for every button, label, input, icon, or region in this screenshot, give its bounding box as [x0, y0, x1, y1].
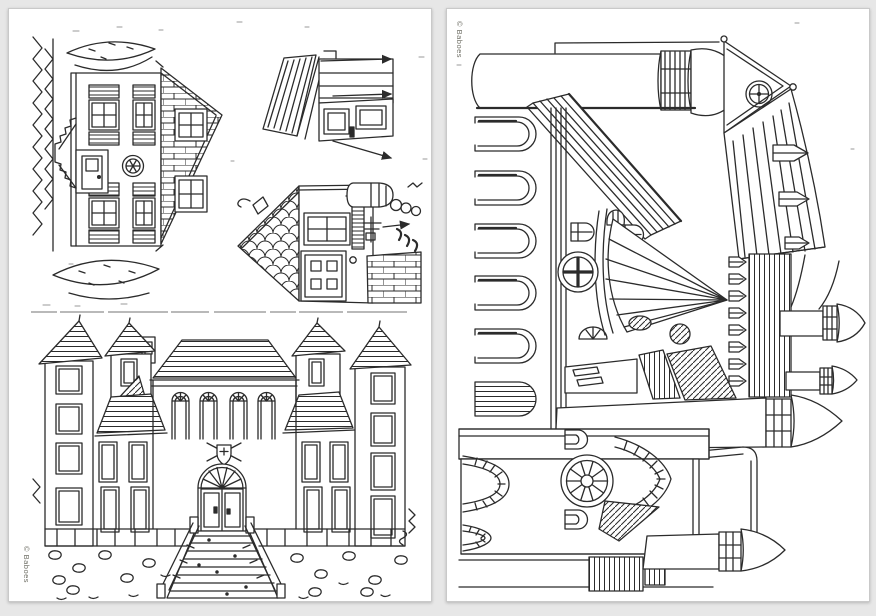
copyright-label: © Baboes — [22, 546, 31, 583]
entrance-door — [55, 118, 108, 193]
arched-windows — [172, 393, 275, 440]
copyright-label: © Baboes — [455, 21, 464, 58]
cathedral-group — [459, 36, 865, 591]
scale-roof-house-drawing — [238, 183, 422, 303]
aisle-roofs — [565, 316, 736, 400]
coloring-page-right: © Baboes — [446, 8, 870, 602]
cathedral-drawing — [447, 9, 869, 601]
houses-and-castle-drawing — [9, 9, 431, 601]
emblem — [207, 443, 241, 465]
colonnade-arches — [475, 117, 536, 469]
nave-roof-band — [527, 94, 681, 239]
minaret-top — [780, 304, 865, 342]
entrance-portal — [198, 464, 246, 531]
rose-window — [561, 455, 613, 507]
section-divider-line — [31, 304, 407, 312]
coloring-page-left: © Baboes — [8, 8, 432, 602]
sideways-house-drawing — [33, 37, 222, 299]
tilted-plank-house-drawing — [263, 51, 393, 158]
castle-drawing — [33, 315, 415, 600]
document-viewer-canvas: © Baboes — [0, 0, 876, 616]
minaret-small — [786, 366, 857, 394]
round-window — [123, 156, 144, 177]
round-tower — [472, 49, 735, 116]
minaret-bottom — [643, 529, 785, 571]
small-lancet-windows — [729, 257, 746, 386]
